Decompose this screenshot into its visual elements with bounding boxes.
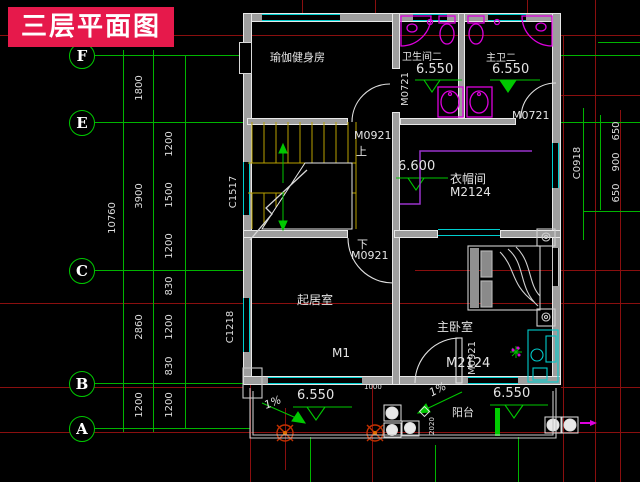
- grid-bubble-b: B: [69, 371, 95, 397]
- dim-minor: 1200: [164, 122, 176, 166]
- dim-major: 1800: [134, 66, 146, 110]
- level-balcony-right: 6.550: [493, 386, 530, 401]
- dim-major: 3900: [134, 174, 146, 218]
- grid-bubble-e: E: [69, 110, 95, 136]
- nightstand: [537, 229, 555, 246]
- level-balcony-left: 6.550: [297, 388, 334, 403]
- stair-up-label: 上: [356, 143, 367, 159]
- dim-minor: 1200: [164, 224, 176, 268]
- dim-misc-small: 1000: [364, 383, 382, 391]
- dim-minor: 830: [164, 264, 176, 308]
- drawing-title-banner: 三层平面图: [8, 7, 174, 47]
- window-tag-c0918: C0918: [572, 141, 584, 185]
- dim-minor: 1200: [164, 305, 176, 349]
- dim-minor: 1500: [164, 173, 176, 217]
- column-symbols-white: [384, 405, 597, 437]
- plan-linework: [0, 0, 640, 482]
- door-tag-m2124-closet: M2124: [450, 185, 491, 199]
- room-label-bath: 卫生间二: [402, 48, 442, 63]
- toilet: [439, 16, 455, 23]
- plant: [510, 346, 522, 358]
- nightstand: [537, 309, 555, 326]
- level-stair: 6.600: [398, 159, 435, 174]
- door-tag-m0721-closet: M0721: [512, 109, 550, 122]
- toilet: [468, 16, 484, 23]
- desk: [528, 330, 558, 382]
- dim-major: 1200: [134, 383, 146, 427]
- grid-bubble-c: C: [69, 258, 95, 284]
- door-arc-yoga: [352, 84, 390, 122]
- level-marks: [293, 80, 548, 436]
- dim-misc: 2020: [426, 404, 438, 448]
- dim-minor: 1200: [164, 383, 176, 427]
- level-master-bath: 6.550: [492, 62, 529, 77]
- room-label-yoga: 瑜伽健身房: [270, 49, 325, 65]
- door-tag-m0721: M0721: [400, 67, 412, 111]
- door-arcs: [348, 83, 556, 383]
- level-bath: 6.550: [416, 62, 453, 77]
- dim-major: 2860: [134, 305, 146, 349]
- dim-overall: 10760: [107, 196, 119, 240]
- room-label-bedroom: 主卧室: [437, 318, 473, 335]
- grid-bubble-a: A: [69, 416, 95, 442]
- bed: [468, 229, 555, 326]
- room-label-living: 起居室: [297, 291, 333, 308]
- door-tag-m1: M1: [332, 346, 350, 360]
- dim-right: 650: [611, 171, 623, 215]
- cad-floorplan-canvas: F E C B A 10760 1800 3900 2860 1200 1200…: [0, 0, 640, 482]
- dim-minor: 830: [164, 344, 176, 388]
- window-tag-c1218: C1218: [225, 305, 237, 349]
- room-label-balcony: 阳台: [452, 404, 474, 420]
- column-symbols-red: [277, 425, 383, 441]
- door-tag-m0921-top: M0921: [354, 129, 392, 142]
- corner-tub: [522, 16, 552, 46]
- door-tag-m2124-bedroom: M2124: [446, 356, 490, 371]
- window-tag-c1517: C1517: [228, 170, 240, 214]
- door-tag-m0921-bottom: M0921: [351, 249, 389, 262]
